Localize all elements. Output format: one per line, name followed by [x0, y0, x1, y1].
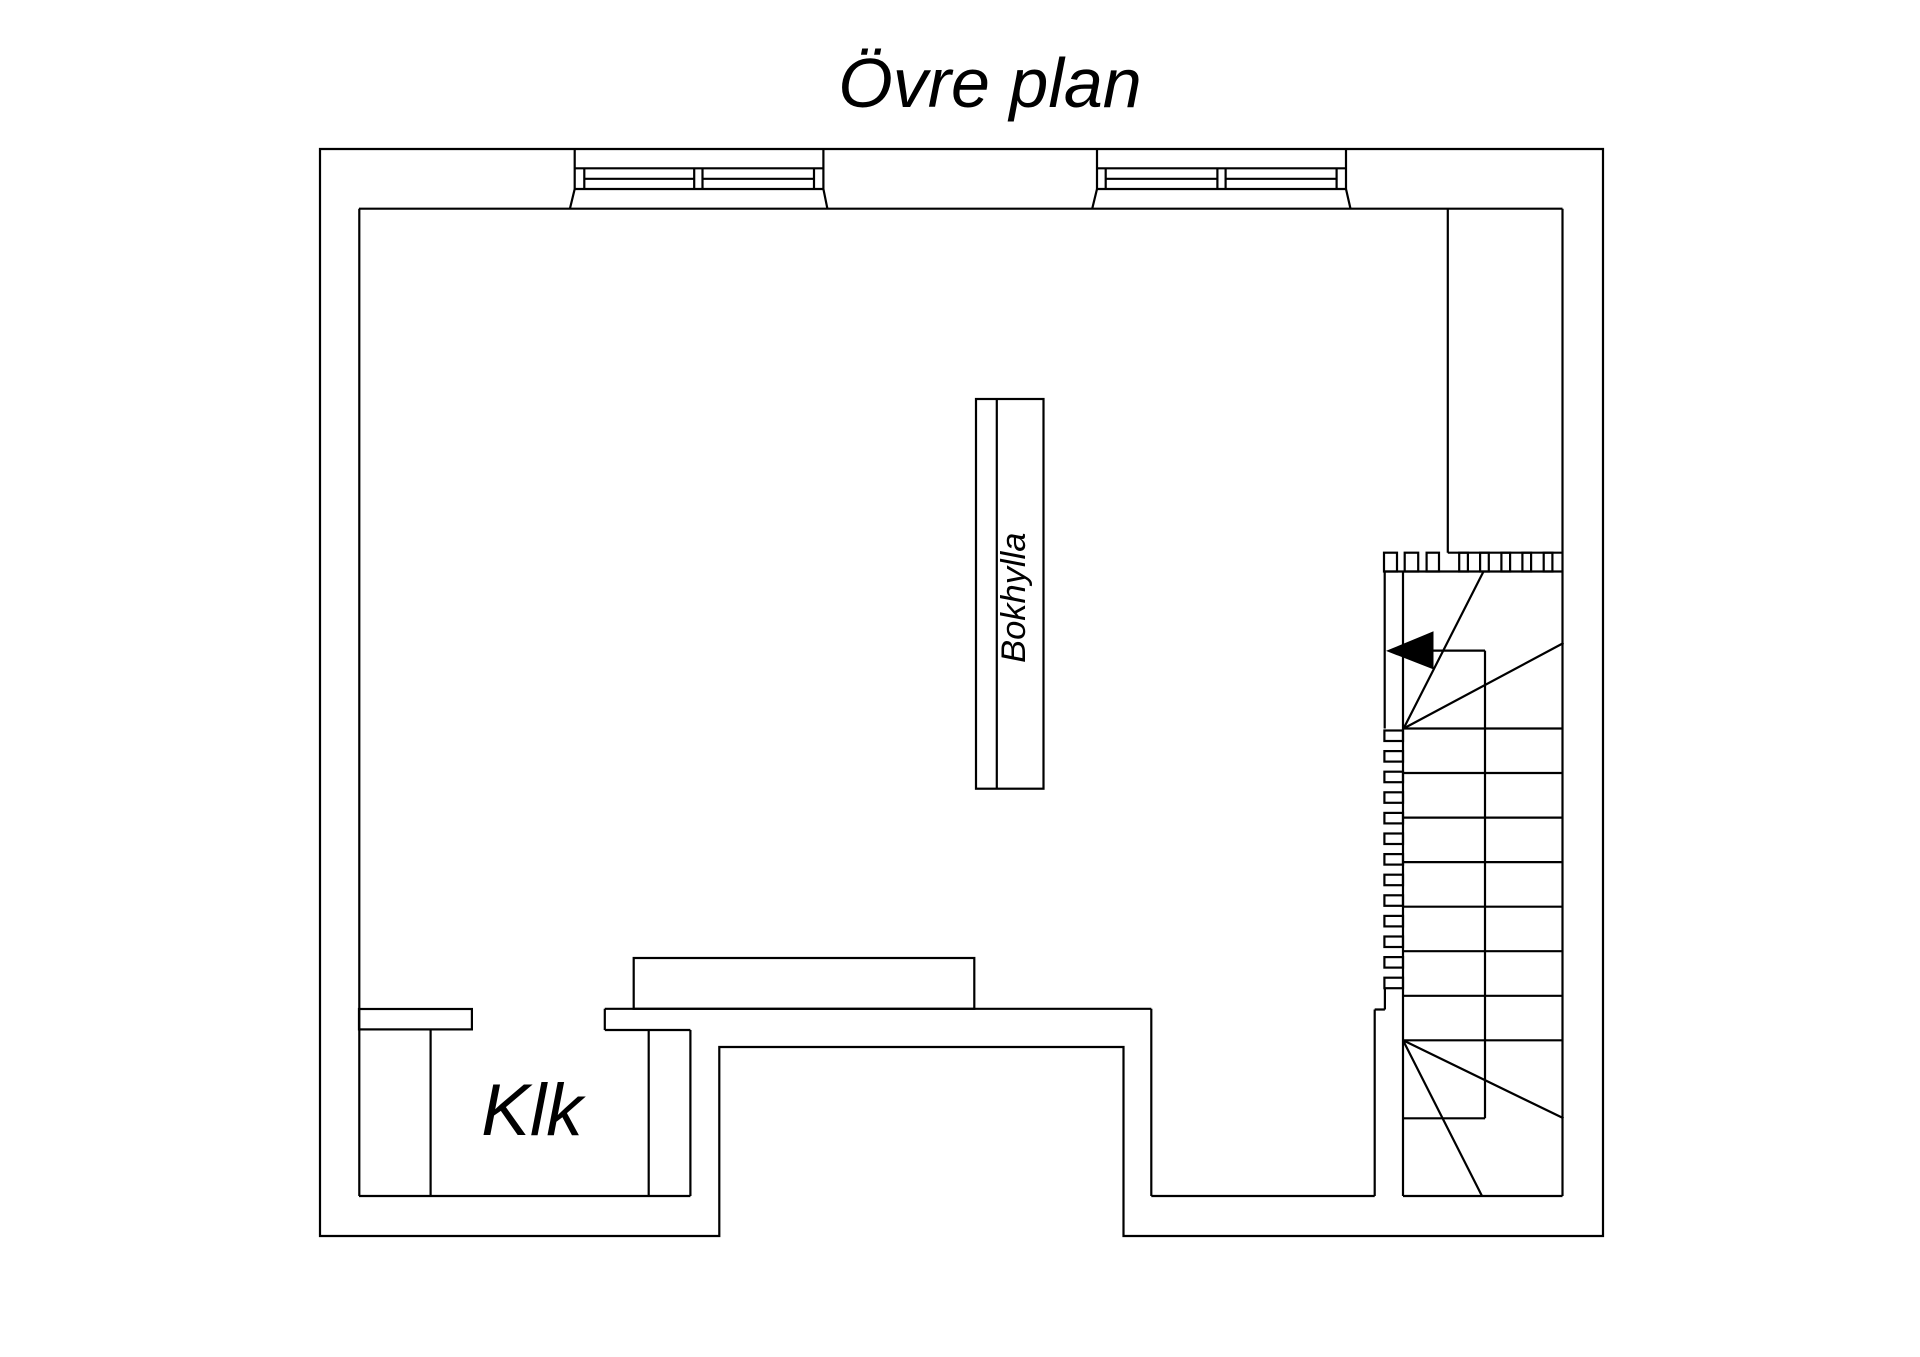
svg-text:Klk: Klk [481, 1070, 586, 1151]
svg-text:Bokhylla: Bokhylla [995, 532, 1033, 662]
svg-text:Övre plan: Övre plan [838, 44, 1141, 122]
